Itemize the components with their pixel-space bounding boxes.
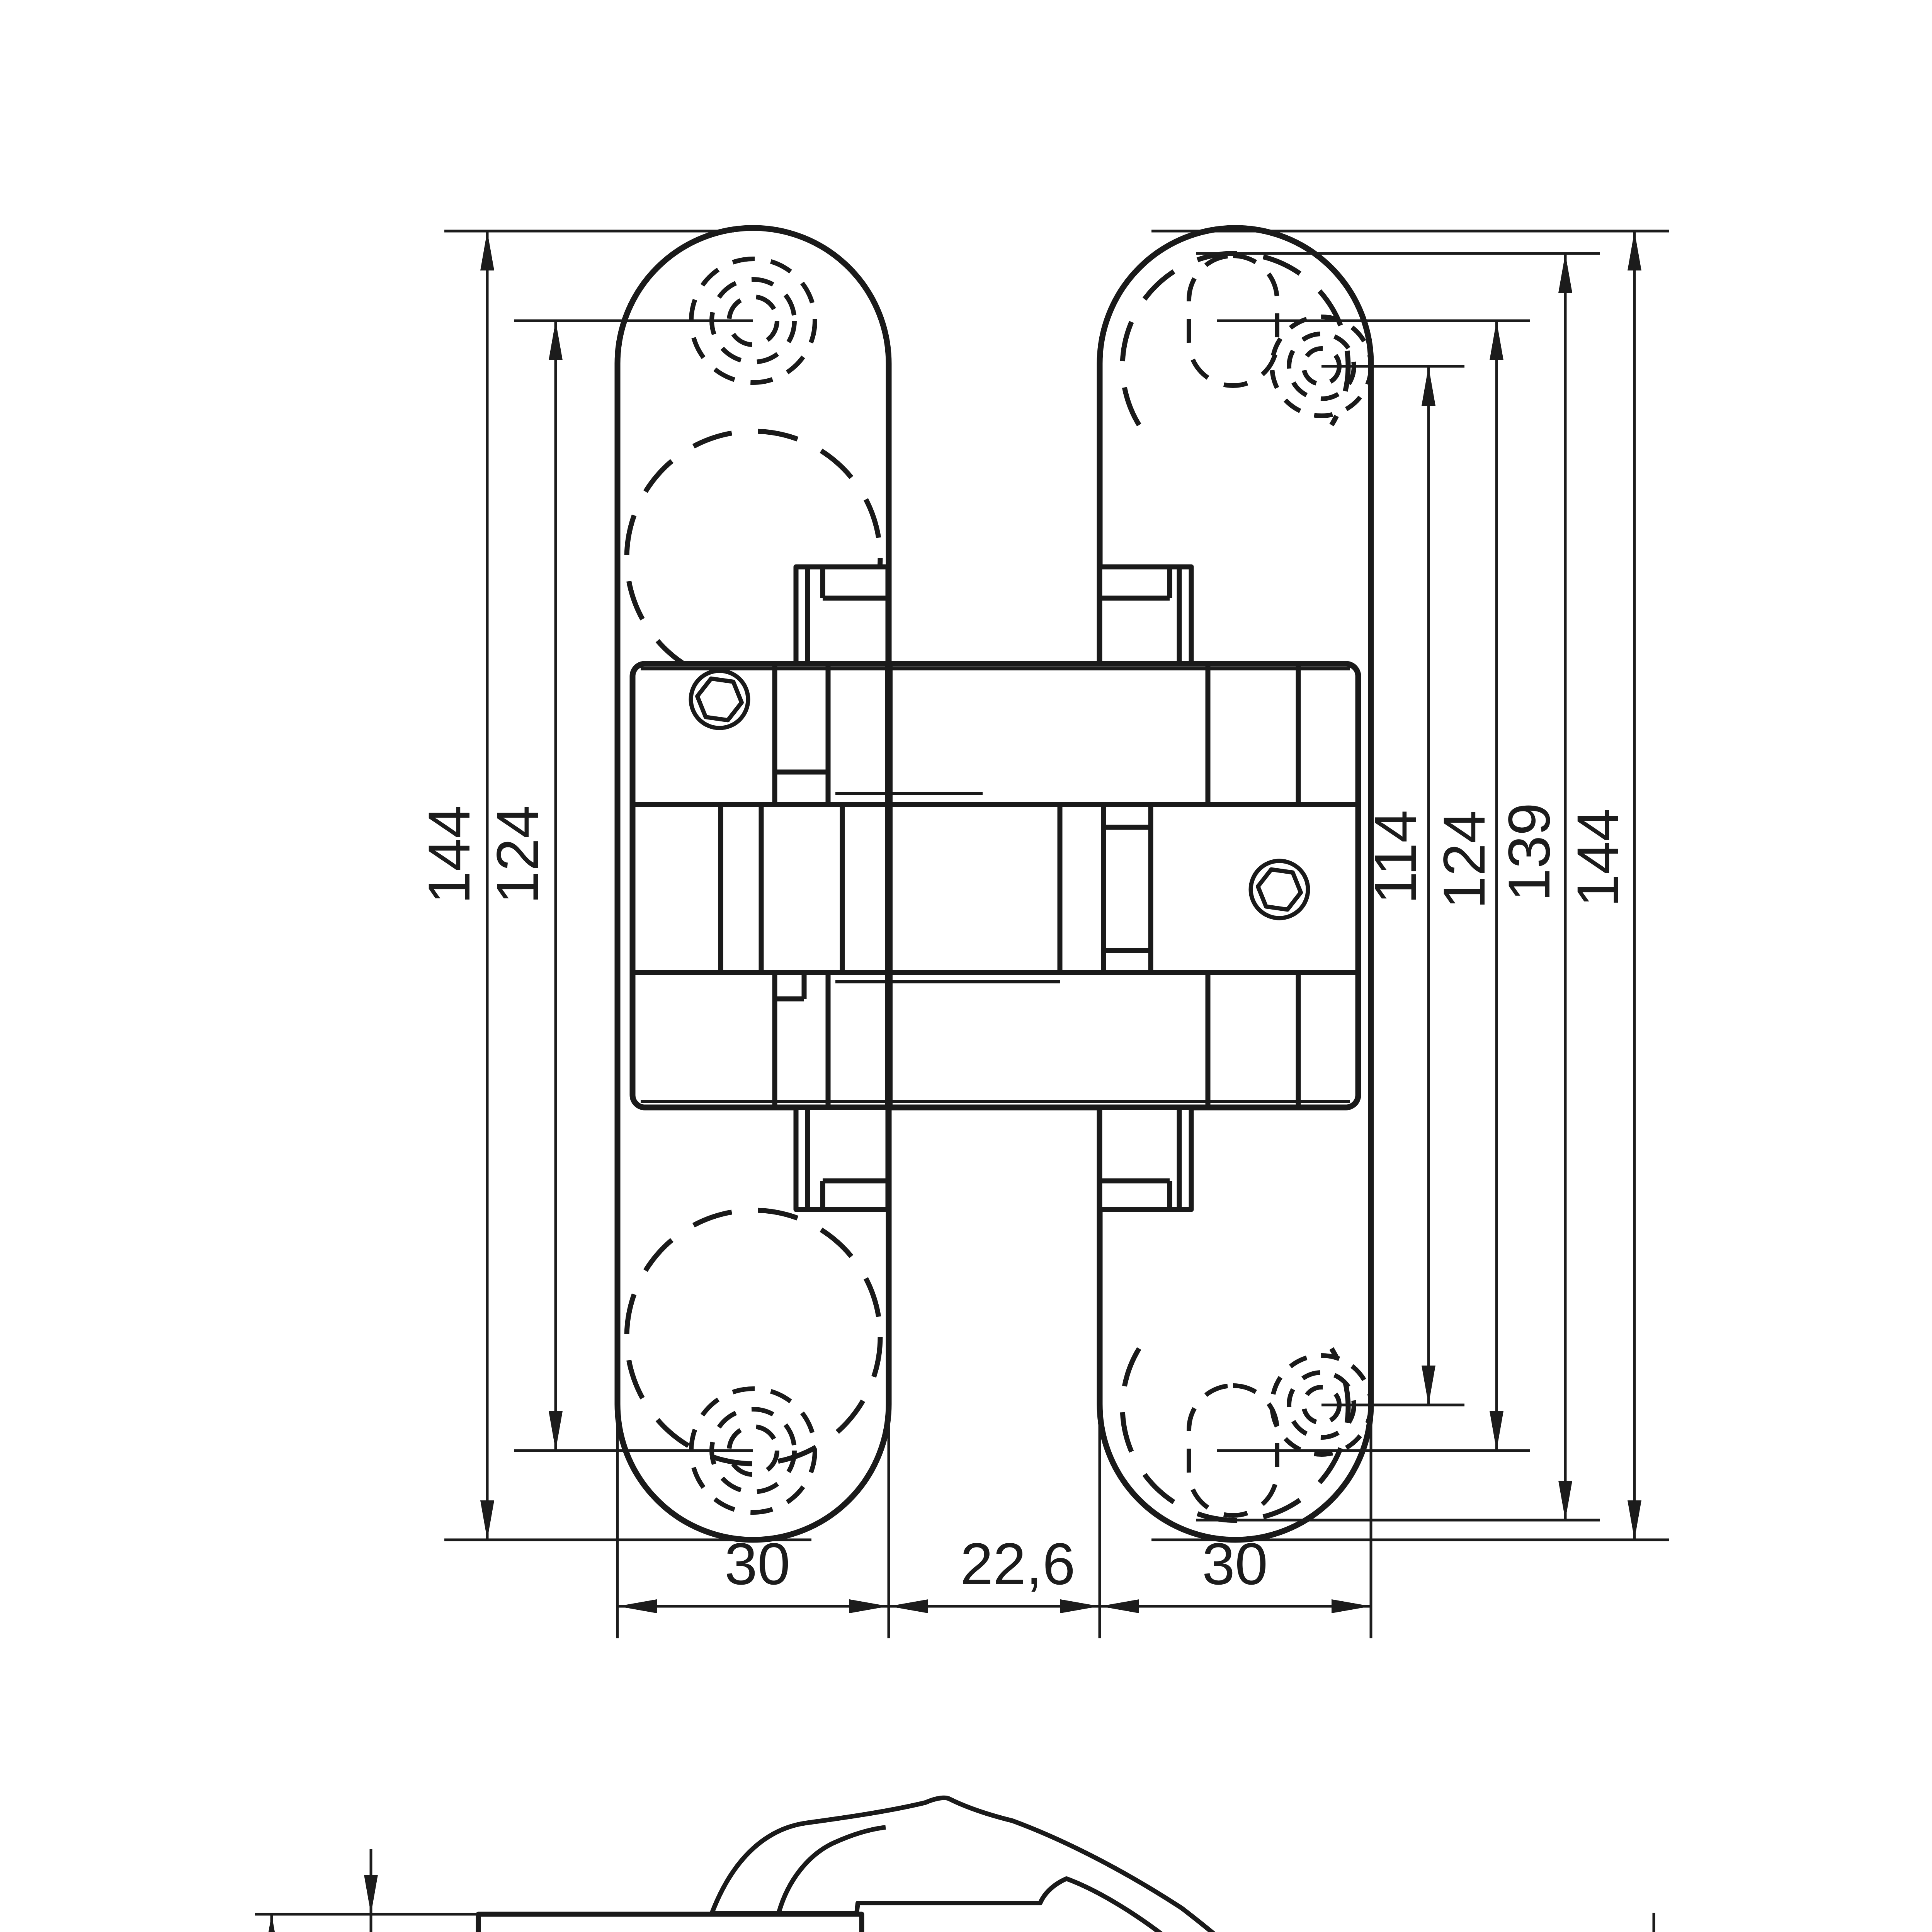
svg-text:30: 30 — [1202, 1531, 1268, 1597]
svg-text:30: 30 — [724, 1531, 790, 1597]
svg-text:22,6: 22,6 — [960, 1531, 1075, 1597]
svg-text:144: 144 — [416, 805, 482, 904]
svg-text:114: 114 — [1362, 810, 1429, 904]
svg-text:144: 144 — [1565, 808, 1631, 907]
svg-text:139: 139 — [1496, 803, 1562, 901]
svg-text:124: 124 — [1431, 810, 1497, 909]
svg-text:124: 124 — [485, 805, 551, 904]
